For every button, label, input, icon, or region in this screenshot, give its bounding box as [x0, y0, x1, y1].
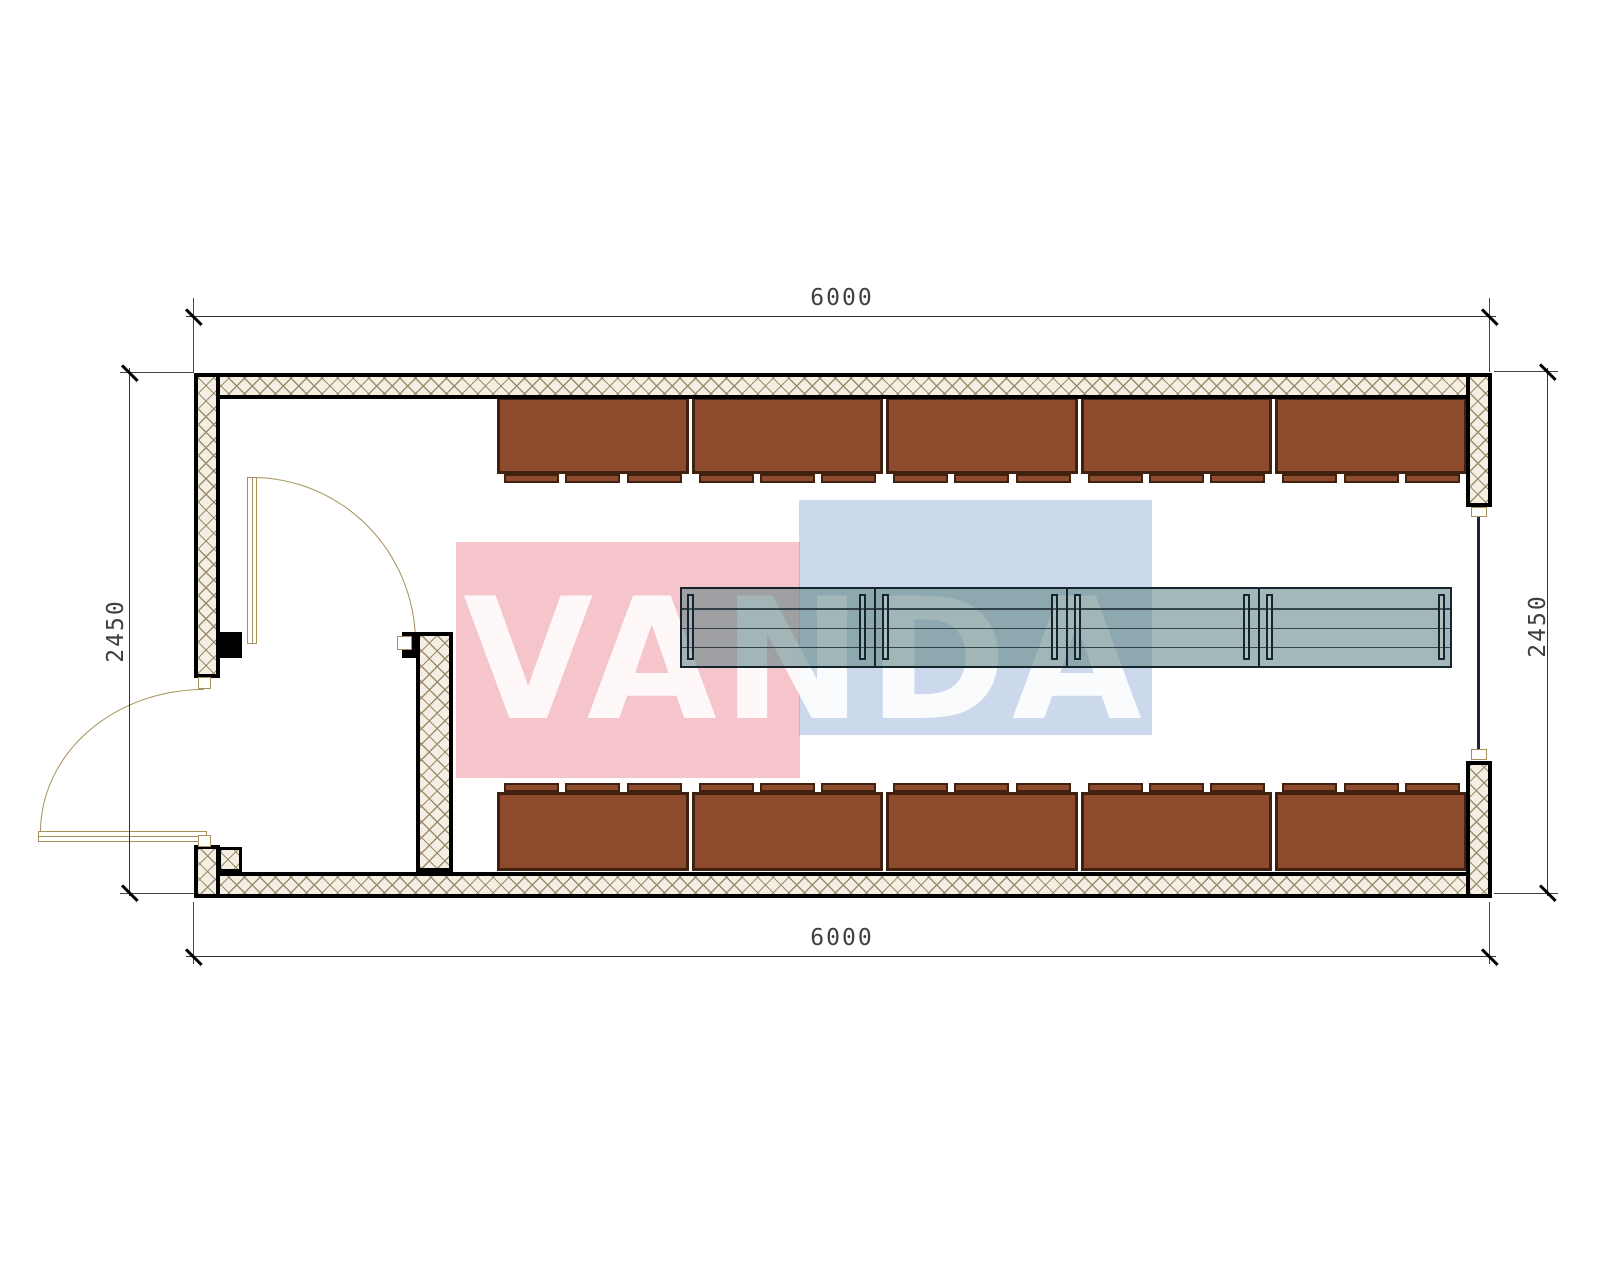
locker-door-strip [692, 783, 884, 792]
locker-unit [886, 397, 1078, 483]
dim-left-line [129, 368, 130, 896]
locker-door-tab [893, 783, 948, 792]
locker-unit-body [1275, 397, 1467, 474]
bench-leg [859, 594, 866, 660]
locker-unit-body [886, 397, 1078, 474]
bench-segment-divider [1066, 589, 1068, 666]
jamb-window-bottom [1471, 749, 1487, 760]
locker-door-tab [1282, 474, 1337, 483]
dim-tick [185, 308, 202, 325]
locker-unit-body [497, 792, 689, 871]
bench-leg [1051, 594, 1058, 660]
bench-segment-divider [1258, 589, 1260, 666]
interior-door-leaf-line [252, 478, 253, 643]
locker-door-strip [886, 474, 1078, 483]
bench-segment-divider [874, 589, 876, 666]
window-line [1477, 516, 1480, 750]
dim-top-ext-left [193, 298, 194, 372]
dim-top-label: 6000 [772, 285, 912, 311]
dim-tick [121, 364, 138, 381]
locker-unit-body [1275, 792, 1467, 871]
locker-door-tab [565, 474, 620, 483]
locker-door-strip [692, 474, 884, 483]
locker-door-tab [699, 783, 754, 792]
dim-bottom-line [186, 956, 1496, 957]
locker-door-tab [760, 783, 815, 792]
jamb-entry-top [198, 677, 211, 689]
dim-tick [185, 948, 202, 965]
locker-unit-body [1081, 397, 1273, 474]
wall-bottom [194, 872, 1492, 898]
locker-door-tab [699, 474, 754, 483]
locker-door-tab [504, 783, 559, 792]
locker-door-strip [1275, 783, 1467, 792]
locker-door-strip [497, 474, 689, 483]
dim-top-line [186, 316, 1496, 317]
locker-unit [886, 783, 1078, 871]
locker-unit-body [692, 792, 884, 871]
entry-door-swing-arc [40, 689, 204, 832]
locker-door-strip [1275, 474, 1467, 483]
locker-door-tab [954, 783, 1009, 792]
bench [680, 587, 1452, 668]
entry-door-leaf [38, 831, 207, 842]
partition-wall [416, 632, 453, 872]
locker-unit-body [497, 397, 689, 474]
locker-unit [1275, 783, 1467, 871]
locker-door-tab [1149, 474, 1204, 483]
bench-leg [1438, 594, 1445, 660]
locker-unit [1081, 783, 1273, 871]
locker-unit-body [886, 792, 1078, 871]
dim-tick [1539, 363, 1556, 380]
dim-bottom-label: 6000 [772, 925, 912, 951]
wall-right-upper [1466, 373, 1492, 507]
locker-door-tab [893, 474, 948, 483]
locker-unit [1081, 397, 1273, 483]
locker-door-tab [954, 474, 1009, 483]
locker-door-tab [627, 474, 682, 483]
bench-leg [1266, 594, 1273, 660]
wall-left-lower [194, 845, 220, 898]
locker-unit [692, 783, 884, 871]
wall-top [194, 373, 1492, 399]
locker-unit [497, 397, 689, 483]
dim-left-label: 2450 [103, 561, 129, 701]
locker-door-tab [1149, 783, 1204, 792]
locker-unit-body [1081, 792, 1273, 871]
locker-door-tab [1282, 783, 1337, 792]
bench-leg [1074, 594, 1081, 660]
locker-door-tab [1016, 783, 1071, 792]
jamb-entry-bottom [198, 835, 211, 847]
locker-door-tab [627, 783, 682, 792]
locker-unit [1275, 397, 1467, 483]
locker-door-tab [1344, 783, 1399, 792]
jamb-window-top [1471, 507, 1487, 517]
locker-door-tab [760, 474, 815, 483]
locker-door-tab [821, 783, 876, 792]
locker-door-tab [1405, 783, 1460, 792]
locker-row-bottom [497, 783, 1467, 871]
locker-unit [497, 783, 689, 871]
bench-leg [882, 594, 889, 660]
door-stub-left [218, 632, 242, 658]
bench-leg [687, 594, 694, 660]
locker-door-strip [886, 783, 1078, 792]
dim-tick [1481, 308, 1498, 325]
dim-right-label: 2450 [1525, 556, 1551, 696]
locker-door-tab [821, 474, 876, 483]
locker-unit-body [692, 397, 884, 474]
wall-step-bottom-left [218, 847, 242, 872]
locker-door-tab [504, 474, 559, 483]
locker-door-tab [1016, 474, 1071, 483]
locker-unit [692, 397, 884, 483]
dim-top-ext-right [1489, 298, 1490, 372]
locker-door-tab [1210, 783, 1265, 792]
locker-door-tab [1210, 474, 1265, 483]
locker-door-tab [1088, 783, 1143, 792]
bench-leg [1243, 594, 1250, 660]
entry-door-leaf-line [39, 836, 206, 837]
locker-door-strip [497, 783, 689, 792]
locker-row-top [497, 397, 1467, 483]
wall-left-upper [194, 373, 220, 678]
dim-tick [1481, 948, 1498, 965]
interior-door-leaf [247, 477, 257, 644]
locker-door-strip [1081, 783, 1273, 792]
locker-door-tab [1344, 474, 1399, 483]
locker-door-tab [1405, 474, 1460, 483]
floor-plan-canvas: VANDA 6000 6000 2450 [0, 0, 1600, 1280]
locker-door-tab [565, 783, 620, 792]
wall-right-lower [1466, 761, 1492, 898]
locker-door-strip [1081, 474, 1273, 483]
jamb-interior-door [397, 636, 412, 650]
locker-door-tab [1088, 474, 1143, 483]
interior-door-swing-arc [252, 477, 416, 643]
